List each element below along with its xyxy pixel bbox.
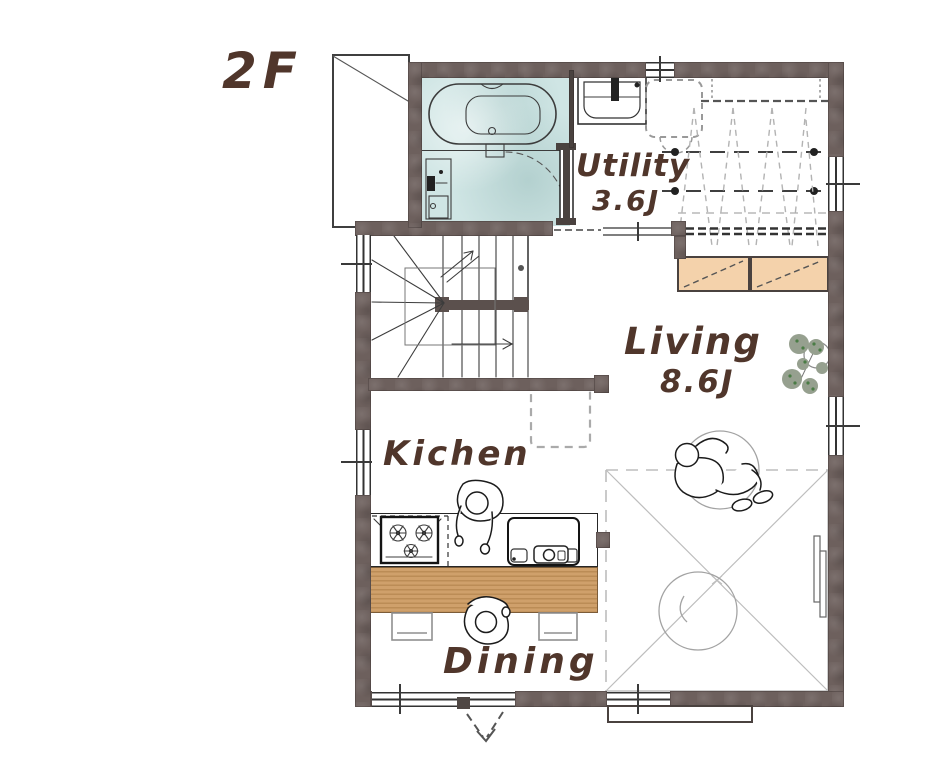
wall-bath-stair-divider <box>355 221 553 236</box>
shower-stand <box>426 159 451 219</box>
wall-right-mid <box>828 211 844 397</box>
living-rug <box>606 470 828 691</box>
tv-board <box>814 536 826 617</box>
room-label-living-name: Living <box>624 320 762 363</box>
balcony-roof-line <box>333 56 408 101</box>
wall-right-lower <box>828 455 844 707</box>
room-label-utility-size: 3.6J <box>592 184 660 217</box>
potted-plant <box>782 334 830 394</box>
tick-top <box>659 56 661 82</box>
round-cushion-bottom <box>659 572 737 650</box>
wall-left-lower <box>355 495 371 707</box>
entrance-gable-mark <box>467 712 503 741</box>
window-bottom-left <box>372 692 515 707</box>
wall-drying-post <box>671 221 686 236</box>
floor-plan-2f: 2F Utility 3.6J Living 8.6J Kichen Dinin… <box>0 0 940 780</box>
staircase <box>372 236 529 377</box>
refrigerator-outline <box>531 386 590 447</box>
door-pivot-block <box>457 697 470 709</box>
bathroom-door-arc <box>506 152 567 217</box>
laundry-closet-outline <box>701 79 831 101</box>
tick-bottom-right <box>637 684 639 714</box>
room-label-utility-name: Utility <box>576 148 690 184</box>
hanging-clothes-hatch <box>678 108 818 246</box>
wall-right-upper <box>828 62 844 157</box>
bathroom-sliding-door <box>556 143 576 225</box>
tick-left-lower <box>341 461 372 463</box>
wall-bathroom-left <box>408 62 422 228</box>
storage-cabinets <box>678 257 828 291</box>
kitchen-sink <box>508 518 579 565</box>
wall-top-left <box>410 62 646 78</box>
person-lounging <box>675 438 774 512</box>
room-label-dining: Dining <box>443 641 599 682</box>
tick-right-upper <box>826 183 860 185</box>
wall-counter-stub <box>596 532 610 548</box>
wall-stair-bottom <box>368 378 597 391</box>
tick-left-upper <box>341 263 372 265</box>
wall-bath-utility-partition <box>569 70 574 148</box>
tick-bottom-left <box>399 684 401 714</box>
wall-drying-post-lower <box>674 236 686 259</box>
washbasin <box>578 76 646 124</box>
gas-stove <box>381 517 438 563</box>
room-label-living-size: 8.6J <box>660 364 734 400</box>
tick-right-lower <box>826 425 860 427</box>
person-dining <box>464 597 510 644</box>
tick-sliding-opening <box>637 222 639 241</box>
wall-stair-bottom-post <box>594 375 609 393</box>
bathtub <box>421 84 569 157</box>
window-sill-outside <box>607 705 753 723</box>
wall-bottom-mid <box>515 691 607 707</box>
floor-label: 2F <box>222 42 303 100</box>
wall-top-right <box>674 62 844 78</box>
person-cooking <box>455 480 503 554</box>
room-label-kitchen: Kichen <box>383 434 531 474</box>
washing-machine-outline <box>646 80 702 153</box>
wall-left-mid <box>355 292 371 430</box>
